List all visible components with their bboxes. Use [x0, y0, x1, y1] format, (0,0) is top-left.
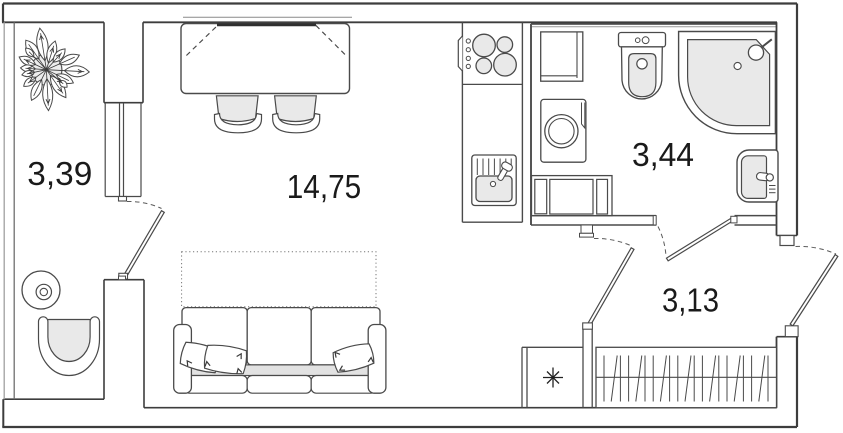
svg-text:14,75: 14,75 [287, 169, 362, 206]
svg-text:3,44: 3,44 [632, 137, 694, 174]
svg-text:3,13: 3,13 [662, 282, 719, 319]
svg-text:3,39: 3,39 [27, 156, 92, 193]
